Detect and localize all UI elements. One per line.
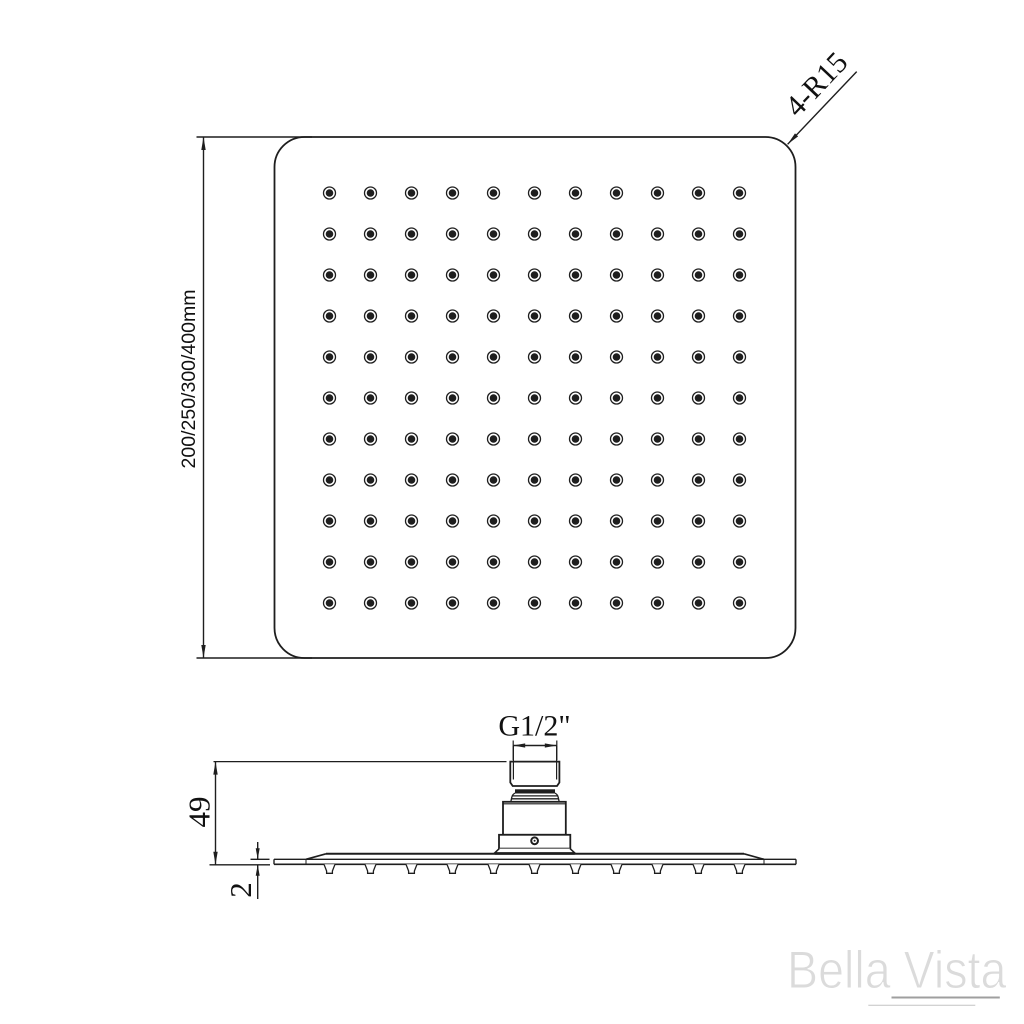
svg-text:200/250/300/400mm: 200/250/300/400mm: [178, 290, 200, 469]
svg-text:G1/2": G1/2": [498, 710, 570, 743]
svg-text:49: 49: [182, 797, 217, 828]
svg-text:2: 2: [223, 882, 258, 898]
svg-text:Bella Vista: Bella Vista: [787, 940, 1007, 999]
